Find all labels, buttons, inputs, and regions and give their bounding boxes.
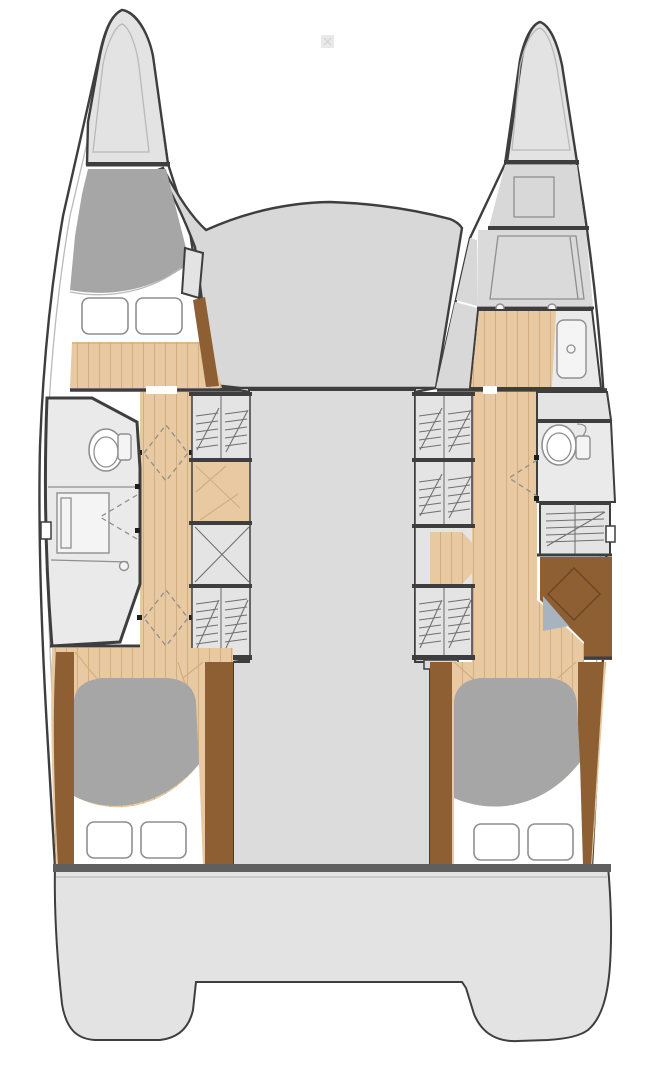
floor-plan-image xyxy=(0,0,650,1080)
port-collision-bulkhead xyxy=(86,162,170,167)
port-wardrobes xyxy=(189,392,252,660)
shower-drain xyxy=(120,562,129,571)
door-opening xyxy=(146,386,177,394)
starboard-aft-cabin xyxy=(428,660,610,870)
pillow xyxy=(474,824,519,860)
joinery-trim xyxy=(205,662,233,866)
catamaran-deck-plan xyxy=(0,0,650,1080)
vanity-unit xyxy=(537,392,611,420)
toilet-pump xyxy=(118,434,131,460)
shower-tray xyxy=(557,320,586,378)
locker-handle xyxy=(606,526,615,542)
vanity-counter xyxy=(57,493,109,553)
port-aft-cabin xyxy=(48,646,238,868)
stern-platform xyxy=(55,866,611,1041)
bed-duvet xyxy=(70,169,187,293)
watermark-icon xyxy=(321,35,334,48)
pillow xyxy=(87,822,132,858)
pillow xyxy=(136,298,182,334)
joinery-trim xyxy=(430,662,452,866)
deck-step-box xyxy=(182,248,203,298)
salon xyxy=(233,390,430,866)
door-opening xyxy=(483,386,497,394)
joinery-trim xyxy=(54,652,74,866)
starboard-shower-room xyxy=(468,309,601,389)
storage-box xyxy=(192,525,250,584)
pillow xyxy=(141,822,186,858)
hull-port-light xyxy=(41,522,51,539)
port-corridor xyxy=(137,390,194,664)
port-bow-locker xyxy=(86,10,170,167)
wood-shelf xyxy=(192,462,250,521)
pillow xyxy=(528,824,573,860)
starboard-collision-bulkhead xyxy=(504,160,579,165)
port-bathroom xyxy=(41,398,140,646)
pillow xyxy=(82,298,128,334)
toilet-pump xyxy=(576,436,590,459)
starboard-wardrobes xyxy=(412,392,480,669)
